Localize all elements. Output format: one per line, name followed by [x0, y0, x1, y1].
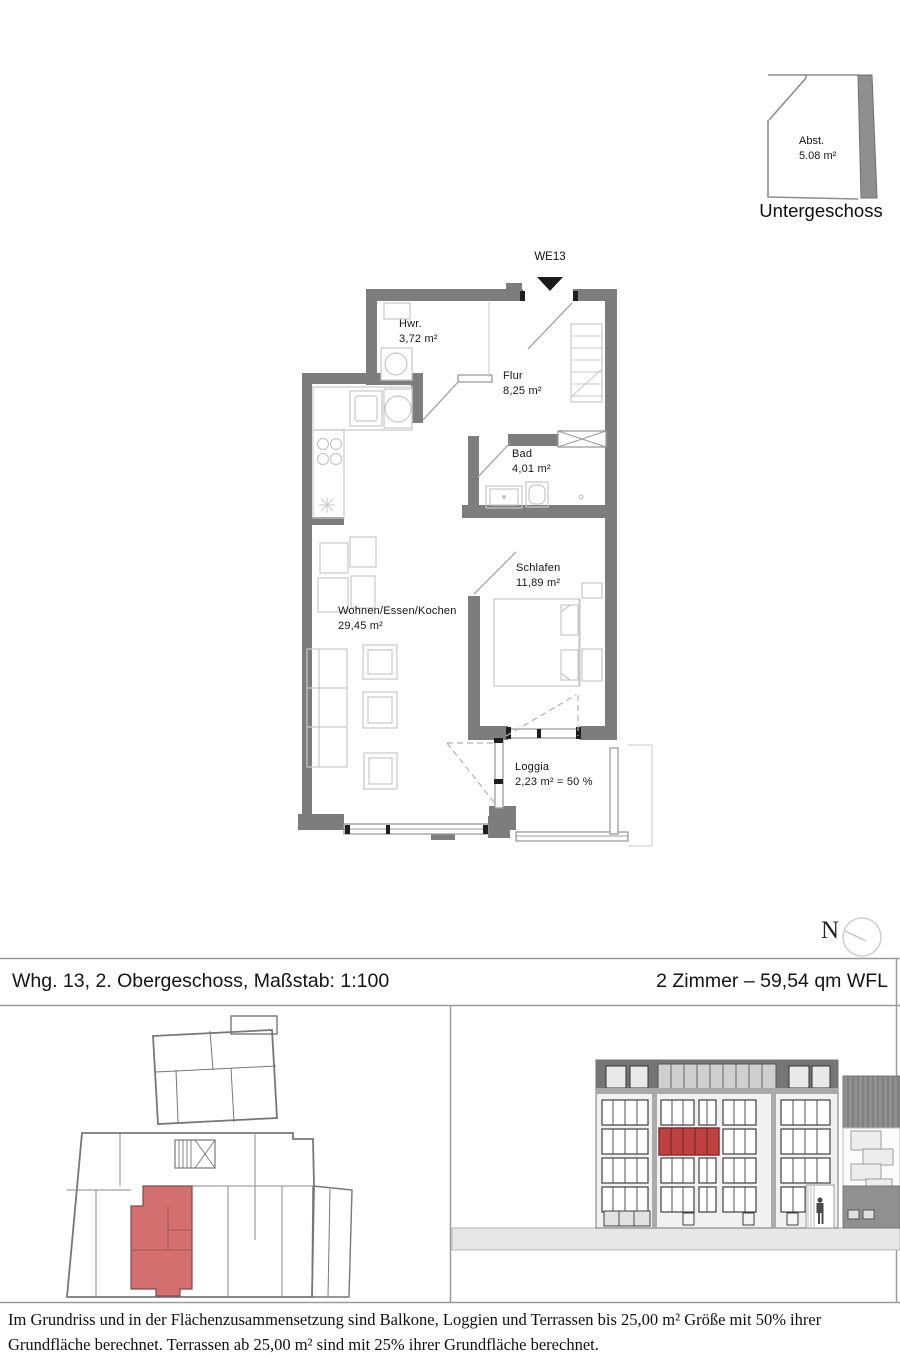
room-label-wohnen: Wohnen/Essen/Kochen 29,45 m² [338, 604, 457, 633]
room-area: 8,25 m² [503, 384, 542, 399]
title-bar: Whg. 13, 2. Obergeschoss, Maßstab: 1:100… [0, 959, 900, 1004]
compass-north-label: N [821, 917, 839, 945]
disclaimer-text: Im Grundriss und in der Flächenzusammens… [0, 1303, 900, 1358]
room-area: 29,45 m² [338, 619, 457, 634]
floor-plan-walls [298, 283, 617, 840]
room-name: Bad [512, 448, 532, 460]
room-name: Loggia [515, 761, 549, 773]
basement-room-label: Abst. 5.08 m² [799, 134, 836, 164]
room-name: Hwr. [399, 318, 422, 330]
room-area: 3,72 m² [399, 332, 438, 347]
room-label-schlafen: Schlafen 11,89 m² [516, 561, 560, 590]
room-name: Schlafen [516, 562, 560, 574]
room-area: 11,89 m² [516, 576, 560, 591]
unit-marker: WE13 [520, 251, 580, 263]
basement-caption: Untergeschoss [753, 200, 889, 222]
room-label-hwr: Hwr. 3,72 m² [399, 317, 438, 346]
elevation-highlighted-windows [659, 1128, 719, 1155]
room-area: 2,23 m² = 50 % [515, 775, 593, 790]
room-name: Flur [503, 370, 523, 382]
room-label-loggia: Loggia 2,23 m² = 50 % [515, 760, 593, 789]
room-label-bad: Bad 4,01 m² [512, 447, 551, 476]
compass-icon [843, 918, 881, 956]
key-plan [67, 1016, 352, 1297]
building-elevation [452, 1060, 900, 1250]
key-plan-highlighted-apartment [131, 1186, 192, 1296]
basement-room-area: 5.08 m² [799, 150, 836, 162]
title-bar-left: Whg. 13, 2. Obergeschoss, Maßstab: 1:100 [12, 970, 389, 993]
title-bar-right: 2 Zimmer – 59,54 qm WFL [656, 970, 888, 993]
basement-room-name: Abst. [799, 135, 824, 147]
floor-plan-dashed-lines [447, 695, 578, 806]
room-name: Wohnen/Essen/Kochen [338, 605, 457, 617]
entrance-arrow-icon [537, 277, 563, 291]
room-area: 4,01 m² [512, 462, 551, 477]
room-label-flur: Flur 8,25 m² [503, 369, 542, 398]
